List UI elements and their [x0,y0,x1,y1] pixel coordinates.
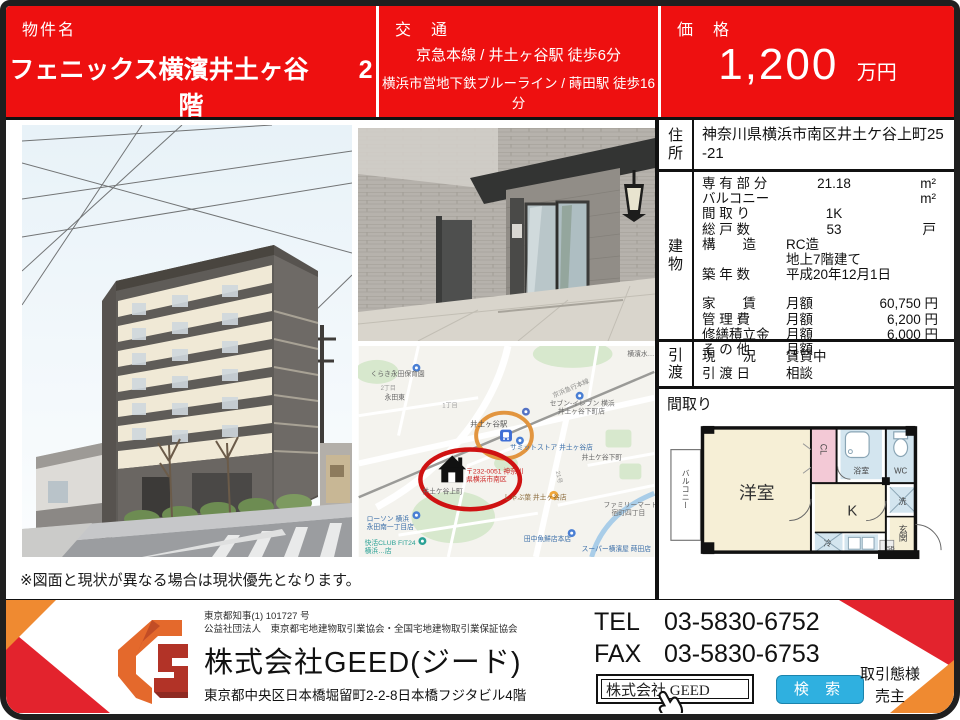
transport-label: 交 通 [395,16,449,40]
floorplan-bath-label: 浴室 [853,465,869,475]
company-name: 株式会社GEED(ジード) [204,639,526,681]
svg-text:県横浜市南区: 県横浜市南区 [466,474,507,483]
svg-text:しゃぶ葉 井土ヶ谷店: しゃぶ葉 井土ヶ谷店 [504,492,567,501]
svg-text:永田南一丁目店: 永田南一丁目店 [367,522,415,531]
svg-text:横濱水…: 横濱水… [627,349,654,358]
spec-unit: 戸 [882,222,948,237]
property-info-panel: 住所 神奈川県横浜市南区井土ケ谷上町25-21 建物 専 有 部 分21.18m… [659,120,954,599]
svg-text:井土ケ谷下町: 井土ケ谷下町 [582,452,623,461]
spec-unit [882,206,948,221]
spec-value: 53 [786,222,882,237]
search-button[interactable]: 検 索 [776,675,864,704]
svg-text:1丁目: 1丁目 [442,403,457,410]
spec-value: 21.18 [786,176,882,191]
floorplan-kitchen-label: K [847,504,857,520]
handover-section: 引渡 現 況賃貸中 引 渡 日相談 [659,342,954,389]
fax-row: FAX 03-5830-6753 [594,638,820,670]
svg-text:スーパー横濱屋 蒔田店: スーパー横濱屋 蒔田店 [582,544,652,553]
company-logo [112,612,196,704]
handover-row-status: 現 況賃貸中 [702,348,948,365]
svg-text:田中魚鮮店本店: 田中魚鮮店本店 [524,534,572,543]
handover-value: 賃貸中 [786,348,948,365]
company-block: 東京都知事(1) 101727 号 公益社団法人 東京都宅地建物取引業協会・全国… [204,611,526,704]
property-name-value: フェニックス横濱井土ヶ谷 2階 [6,50,376,122]
map-station-label: 井土ヶ谷駅 [470,419,508,429]
entrance-photo [358,128,655,341]
spec-name: 総 戸 数 [702,222,786,237]
disclaimer-text: ※図面と現状が異なる場合は現状優先となります。 [20,569,361,590]
fax-label: FAX [594,638,664,670]
floorplan-sb-label: SB [887,546,895,552]
dealing-label: 取引態様 [860,664,920,686]
flyer-page: 物件名 フェニックス横濱井土ヶ谷 2階 交 通 京急本線 / 井土ヶ谷駅 徒歩6… [0,0,960,720]
svg-text:〒232-0051 神奈川: 〒232-0051 神奈川 [466,466,523,475]
floorplan-room-label: 洋室 [739,483,774,503]
spec-name: 築 年 数 [702,267,786,282]
transport-line1: 京急本線 / 井土ヶ谷駅 徒歩6分 [379,44,658,65]
floorplan-balcony-label: バルコニー [681,469,690,508]
fee-name: 修繕積立金 [702,327,786,342]
handover-label: 引渡 [659,342,694,386]
hand-cursor-icon [654,688,688,713]
spec-row-units: 総 戸 数53戸 [702,222,948,237]
spec-value: 平成20年12月1日 [786,267,948,282]
svg-text:サミットストア 井土ヶ谷店: サミットストア 井土ヶ谷店 [510,443,593,452]
dealing-value: 売主 [860,686,920,708]
svg-text:井土ヶ谷下町店: 井土ヶ谷下町店 [558,407,606,416]
tel-number: 03-5830-6752 [664,606,820,638]
dealing-type-block: 取引態様 売主 [860,664,920,708]
fee-period: 月額 [786,296,846,311]
company-address: 東京都中央区日本橋堀留町2-2-8日本橋フジタビル4階 [204,684,526,704]
spec-unit: m² [882,176,948,191]
svg-text:井土ケ谷上町: 井土ケ谷上町 [422,486,463,495]
floorplan-entrance-label: 玄関 [898,523,908,543]
floorplan-fridge-label: 冷 [824,538,832,548]
spec-row-balcony: バルコニーm² [702,191,948,206]
svg-text:くらき永田保育園: くらき永田保育園 [371,369,425,378]
floorplan-drawing: 洋室 バルコニー CL 浴室 WC 洗 K 玄関 冷 SB [667,421,947,563]
disclaimer-strip: ※図面と現状が異なる場合は現状優先となります。 [6,560,651,599]
fee-name: 管 理 費 [702,312,786,327]
handover-row-date: 引 渡 日相談 [702,365,948,382]
spec-name: 間 取 り [702,206,786,221]
svg-text:横浜…店: 横浜…店 [365,546,392,555]
footer-band: 東京都知事(1) 101727 号 公益社団法人 東京都宅地建物取引業協会・全国… [6,599,954,713]
address-value: 神奈川県横浜市南区井土ケ谷上町25-21 [694,120,954,169]
address-row: 住所 神奈川県横浜市南区井土ケ谷上町25-21 [659,120,954,172]
svg-text:永田東: 永田東 [385,393,406,402]
svg-text:快活CLUB FIT24: 快活CLUB FIT24 [365,538,416,547]
floorplan-label: 間取り [667,393,712,414]
building-section: 建物 専 有 部 分21.18m² バルコニーm² 間 取 り1K 総 戸 数5… [659,172,954,342]
spec-name: バルコニー [702,191,786,206]
floorplan-wash-label: 洗 [899,496,907,506]
fee-period: 月額 [786,312,846,327]
spec-row-area: 専 有 部 分21.18m² [702,176,948,191]
svg-text:ローソン 横浜: ローソン 横浜 [367,514,410,523]
spec-row-structure2: 地上7階建て [702,252,948,267]
svg-text:2丁目: 2丁目 [381,385,396,392]
main-content: 京浜急行本線 21号 井土ヶ谷駅 〒232-0051 神奈川 県横浜市南区 [6,120,954,599]
tel-row: TEL 03-5830-6752 [594,606,820,638]
building-section-label: 建物 [659,172,694,339]
search-row: 検 索 [596,674,864,704]
tel-label: TEL [594,606,664,638]
spec-row-layout: 間 取 り1K [702,206,948,221]
floorplan-cl-label: CL [819,444,829,455]
spec-value [786,191,882,206]
floorplan-section: 間取り [659,389,954,596]
handover-name: 引 渡 日 [702,365,786,382]
license-line2: 公益社団法人 東京都宅地建物取引業協会・全国宅地建物取引業保証協会 [204,624,526,637]
price-value: 1,200 [718,40,838,89]
fee-name: 家 賃 [702,296,786,311]
property-name-label: 物件名 [22,16,76,40]
price-label: 価 格 [677,16,731,40]
spec-name [702,252,786,267]
right-buildings-graphic [320,443,352,513]
location-map: 京浜急行本線 21号 井土ヶ谷駅 〒232-0051 神奈川 県横浜市南区 [358,346,655,557]
transport-line2: 横浜市営地下鉄ブルーライン / 蒔田駅 徒歩16分 [379,72,658,112]
handover-value: 相談 [786,365,948,382]
floorplan-wc-label: WC [894,466,907,475]
price-box: 価 格 1,200 万円 [661,6,954,117]
svg-text:セブン-イレブン 横浜: セブン-イレブン 横浜 [550,399,615,408]
station-icon [500,430,512,442]
price-value-wrap: 1,200 万円 [661,40,954,90]
spec-name: 構 造 [702,237,786,252]
fee-amount: 60,750 円 [846,296,938,311]
license-line1: 東京都知事(1) 101727 号 [204,611,526,624]
fence-graphic [436,216,472,314]
fee-row-mgmt: 管 理 費月額6,200 円 [702,312,948,327]
contact-block: TEL 03-5830-6752 FAX 03-5830-6753 [594,606,820,670]
spec-name: 専 有 部 分 [702,176,786,191]
spec-value: 1K [786,206,882,221]
fax-number: 03-5830-6753 [664,638,820,670]
building-exterior-photo [22,125,352,557]
spec-value: RC造 [786,237,948,252]
svg-text:ファミリーマート: ファミリーマート [604,501,655,509]
spec-unit: m² [882,191,948,206]
spec-row-structure: 構 造RC造 [702,237,948,252]
spec-value: 地上7階建て [786,252,948,267]
spec-row-built: 築 年 数平成20年12月1日 [702,267,948,282]
fee-period: 月額 [786,327,846,342]
handover-name: 現 況 [702,348,786,365]
price-unit: 万円 [857,62,897,84]
fee-amount: 6,000 円 [846,327,938,342]
header-band: 物件名 フェニックス横濱井土ヶ谷 2階 交 通 京急本線 / 井土ヶ谷駅 徒歩6… [6,6,954,120]
fee-row-rent: 家 賃月額60,750 円 [702,296,948,311]
fee-amount: 6,200 円 [846,312,938,327]
property-name-box: 物件名 フェニックス横濱井土ヶ谷 2階 [6,6,376,117]
address-label: 住所 [659,120,694,169]
transport-box: 交 通 京急本線 / 井土ヶ谷駅 徒歩6分 横浜市営地下鉄ブルーライン / 蒔田… [379,6,658,117]
fee-row-repair: 修繕積立金月額6,000 円 [702,327,948,342]
svg-text:宿町四丁目: 宿町四丁目 [612,508,646,517]
